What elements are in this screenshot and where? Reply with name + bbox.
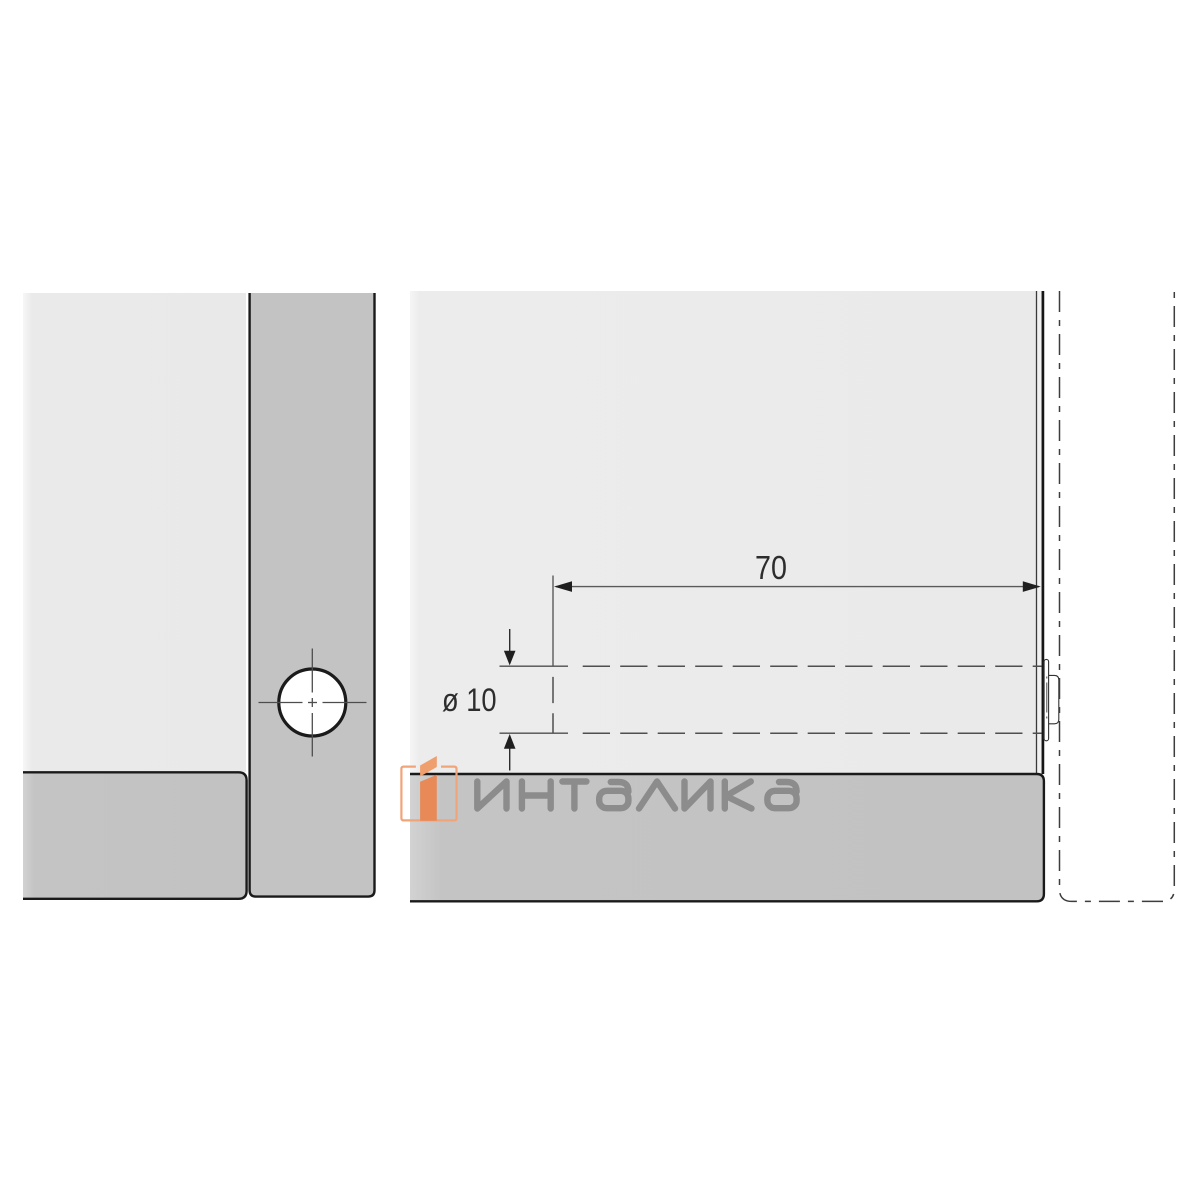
- svg-text:70: 70: [755, 549, 787, 586]
- svg-text:ø 10: ø 10: [442, 683, 497, 719]
